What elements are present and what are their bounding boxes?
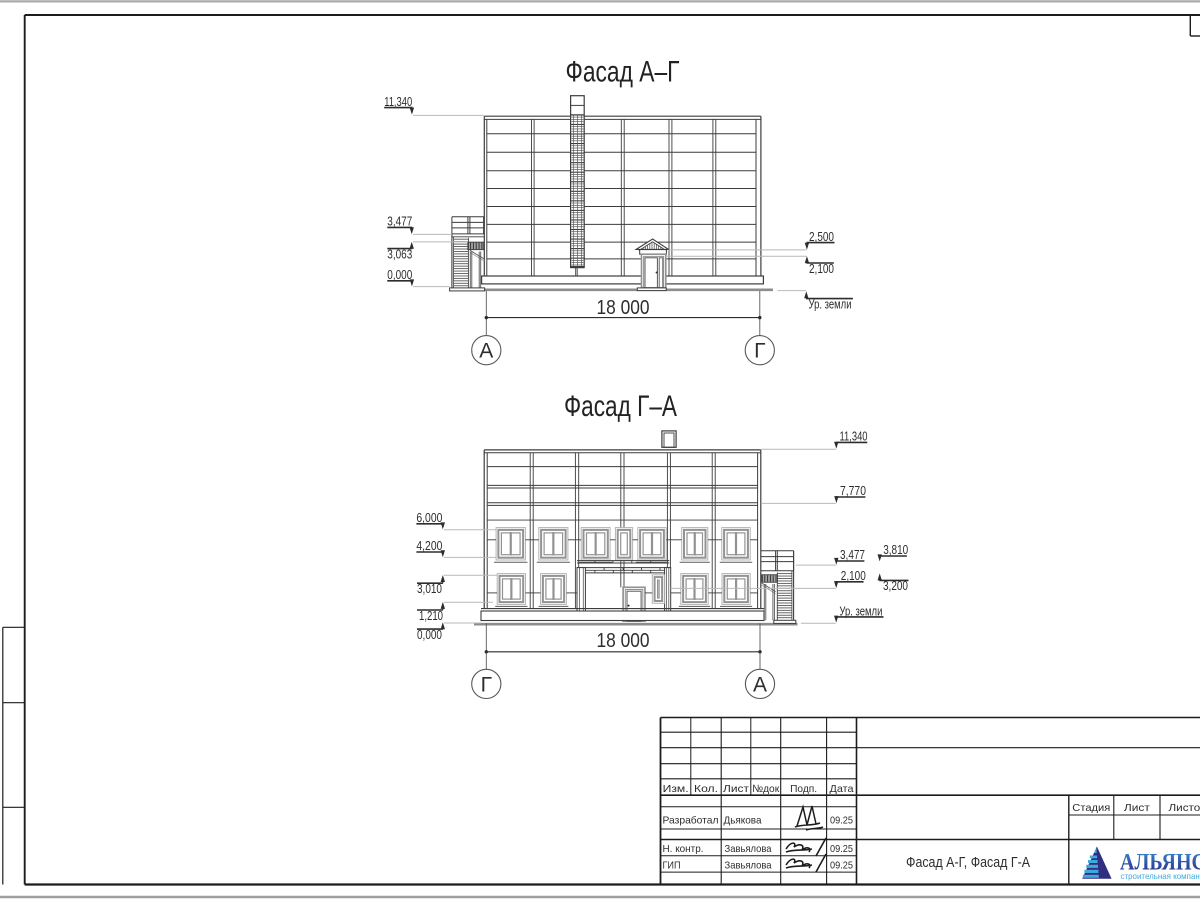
- svg-text:11,340: 11,340: [384, 94, 412, 109]
- svg-text:3,010: 3,010: [417, 581, 442, 596]
- svg-text:А: А: [479, 340, 493, 363]
- svg-text:09.25: 09.25: [830, 859, 853, 871]
- svg-text:Разработал: Разработал: [663, 814, 719, 826]
- svg-text:7,770: 7,770: [840, 483, 866, 498]
- svg-text:Г: Г: [754, 340, 765, 363]
- svg-text:Дьякова: Дьякова: [724, 814, 762, 826]
- svg-text:Г: Г: [481, 673, 492, 696]
- svg-text:Дата: Дата: [830, 783, 854, 795]
- svg-text:Листов: Листов: [1169, 802, 1200, 814]
- svg-text:ГИП: ГИП: [663, 859, 681, 871]
- svg-text:№док: №док: [752, 783, 779, 795]
- svg-text:Фасад А–Г: Фасад А–Г: [566, 56, 680, 89]
- svg-text:3,810: 3,810: [883, 542, 908, 557]
- svg-text:А: А: [753, 673, 767, 696]
- svg-text:Завьялова: Завьялова: [725, 843, 772, 855]
- svg-text:Н. контр.: Н. контр.: [663, 843, 704, 855]
- svg-text:11,340: 11,340: [840, 429, 868, 444]
- svg-text:3,063: 3,063: [387, 246, 412, 261]
- svg-text:Подп.: Подп.: [790, 783, 817, 795]
- svg-text:2,100: 2,100: [809, 261, 834, 276]
- svg-text:4,200: 4,200: [416, 538, 442, 553]
- svg-text:строительная компания: строительная компания: [1121, 872, 1200, 881]
- svg-text:Кол.: Кол.: [694, 783, 718, 795]
- svg-text:2,500: 2,500: [809, 229, 834, 244]
- svg-text:Фасад Г–А: Фасад Г–А: [564, 390, 677, 423]
- svg-text:Лист: Лист: [723, 783, 749, 795]
- svg-text:Изм.: Изм.: [663, 783, 689, 795]
- svg-text:Стадия: Стадия: [1072, 802, 1110, 814]
- svg-text:09.25: 09.25: [830, 843, 853, 855]
- svg-text:3,477: 3,477: [840, 547, 865, 562]
- svg-text:0,000: 0,000: [387, 267, 412, 282]
- svg-text:Фасад А-Г, Фасад Г-А: Фасад А-Г, Фасад Г-А: [906, 855, 1030, 871]
- svg-text:3,477: 3,477: [387, 214, 412, 229]
- svg-text:18 000: 18 000: [597, 629, 650, 652]
- svg-text:2,100: 2,100: [841, 568, 866, 583]
- svg-text:1,210: 1,210: [419, 608, 443, 623]
- svg-text:Лист: Лист: [1124, 802, 1150, 814]
- svg-text:18 000: 18 000: [597, 296, 650, 319]
- svg-text:0,000: 0,000: [417, 627, 442, 642]
- svg-text:Ур. земли: Ур. земли: [809, 296, 852, 311]
- svg-text:АЛЬЯНС: АЛЬЯНС: [1120, 850, 1200, 875]
- svg-text:3,200: 3,200: [883, 578, 908, 593]
- svg-text:6,000: 6,000: [416, 510, 442, 525]
- svg-text:Завьялова: Завьялова: [725, 859, 772, 871]
- svg-text:09.25: 09.25: [830, 814, 853, 826]
